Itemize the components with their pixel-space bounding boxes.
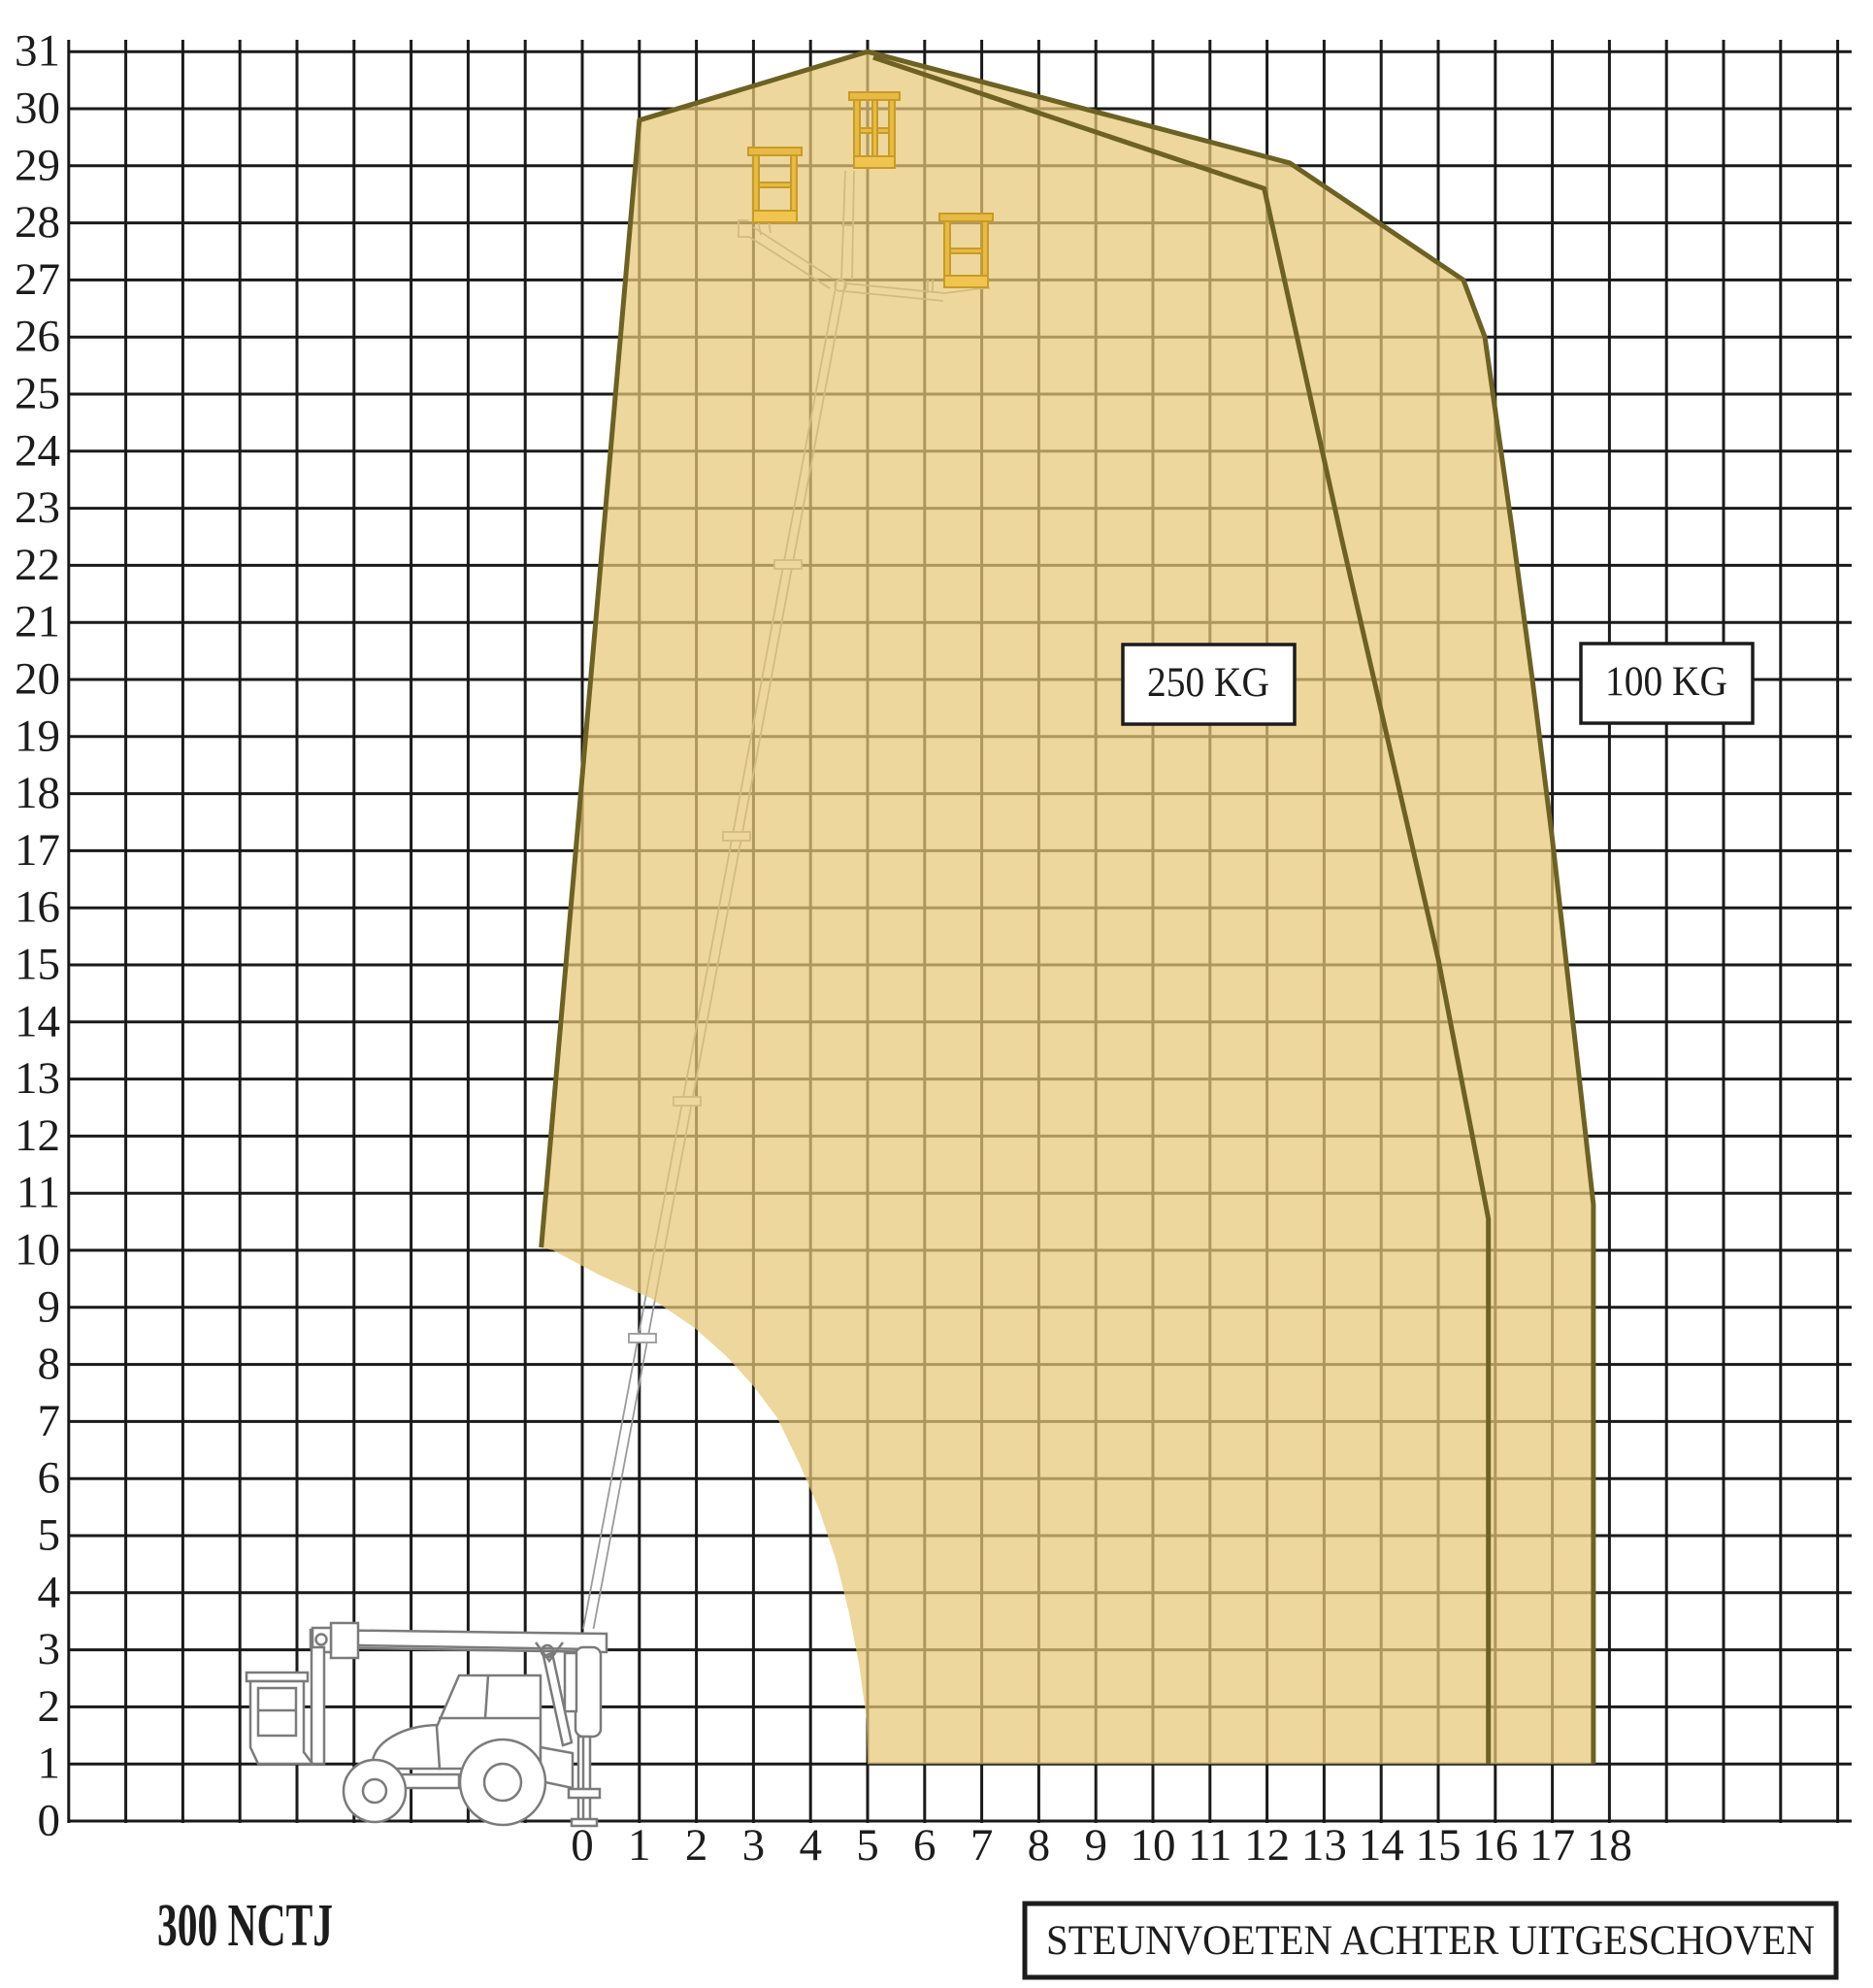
svg-text:27: 27 xyxy=(15,254,60,305)
svg-text:26: 26 xyxy=(15,312,60,362)
svg-text:14: 14 xyxy=(15,996,60,1046)
svg-text:19: 19 xyxy=(15,711,60,761)
svg-text:30: 30 xyxy=(15,83,60,134)
svg-text:31: 31 xyxy=(15,26,60,77)
svg-text:12: 12 xyxy=(15,1110,60,1161)
svg-text:4: 4 xyxy=(38,1567,61,1617)
svg-text:29: 29 xyxy=(15,140,60,190)
svg-text:300 NCTJ: 300 NCTJ xyxy=(157,1893,333,1959)
svg-text:15: 15 xyxy=(1416,1820,1462,1871)
svg-text:28: 28 xyxy=(15,197,60,248)
svg-text:250 KG: 250 KG xyxy=(1147,659,1269,706)
svg-text:13: 13 xyxy=(1301,1820,1347,1871)
svg-text:22: 22 xyxy=(15,540,60,590)
svg-text:18: 18 xyxy=(15,768,60,818)
svg-text:24: 24 xyxy=(15,425,60,476)
svg-text:11: 11 xyxy=(16,1168,60,1218)
svg-text:9: 9 xyxy=(38,1281,61,1332)
svg-text:0: 0 xyxy=(38,1796,61,1846)
svg-text:9: 9 xyxy=(1084,1820,1107,1871)
svg-text:6: 6 xyxy=(913,1820,936,1871)
svg-text:10: 10 xyxy=(15,1225,60,1276)
svg-text:4: 4 xyxy=(799,1820,822,1871)
svg-text:7: 7 xyxy=(970,1820,994,1871)
svg-text:5: 5 xyxy=(38,1510,61,1561)
svg-text:STEUNVOETEN ACHTER UITGESCHOVE: STEUNVOETEN ACHTER UITGESCHOVEN xyxy=(1046,1918,1815,1964)
svg-text:6: 6 xyxy=(38,1453,61,1504)
svg-text:23: 23 xyxy=(15,482,60,533)
svg-text:12: 12 xyxy=(1244,1820,1290,1871)
svg-text:11: 11 xyxy=(1188,1820,1232,1871)
svg-text:0: 0 xyxy=(571,1820,594,1871)
svg-text:17: 17 xyxy=(1529,1820,1575,1871)
svg-text:7: 7 xyxy=(38,1396,61,1446)
svg-text:1: 1 xyxy=(628,1820,651,1871)
svg-text:1: 1 xyxy=(38,1739,61,1789)
svg-text:2: 2 xyxy=(38,1681,61,1732)
svg-text:17: 17 xyxy=(15,825,60,876)
svg-text:15: 15 xyxy=(15,940,60,990)
svg-text:13: 13 xyxy=(15,1053,60,1104)
svg-text:16: 16 xyxy=(1472,1820,1518,1871)
svg-text:8: 8 xyxy=(38,1339,61,1389)
svg-text:16: 16 xyxy=(15,882,60,933)
svg-text:21: 21 xyxy=(15,597,60,647)
svg-text:18: 18 xyxy=(1587,1820,1632,1871)
svg-text:10: 10 xyxy=(1131,1820,1176,1871)
svg-text:14: 14 xyxy=(1359,1820,1404,1871)
svg-text:25: 25 xyxy=(15,369,60,419)
svg-text:5: 5 xyxy=(856,1820,879,1871)
svg-text:2: 2 xyxy=(685,1820,708,1871)
svg-text:8: 8 xyxy=(1028,1820,1051,1871)
svg-text:3: 3 xyxy=(38,1624,61,1674)
svg-text:100 KG: 100 KG xyxy=(1605,658,1727,705)
svg-text:20: 20 xyxy=(15,654,60,705)
svg-text:3: 3 xyxy=(742,1820,766,1871)
